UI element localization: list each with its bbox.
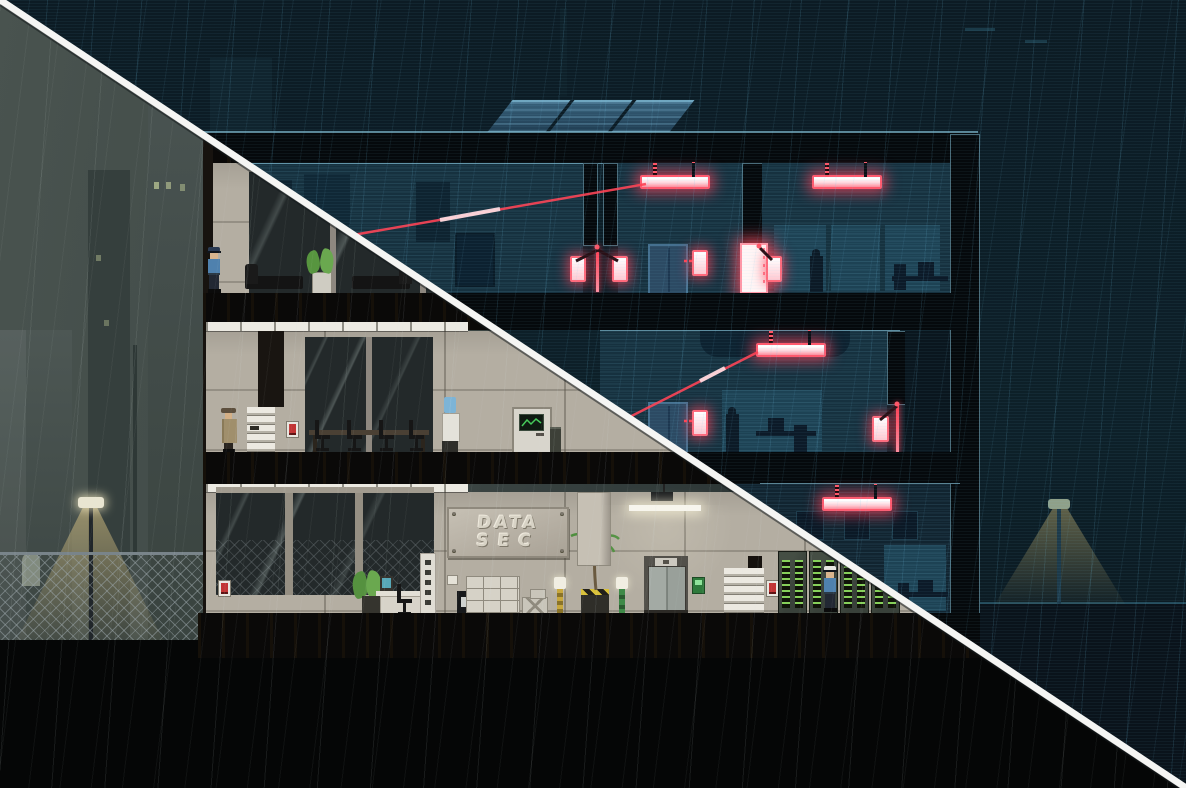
split-line (0, 0, 1186, 788)
game-screen: DATA SEC (0, 0, 1186, 788)
